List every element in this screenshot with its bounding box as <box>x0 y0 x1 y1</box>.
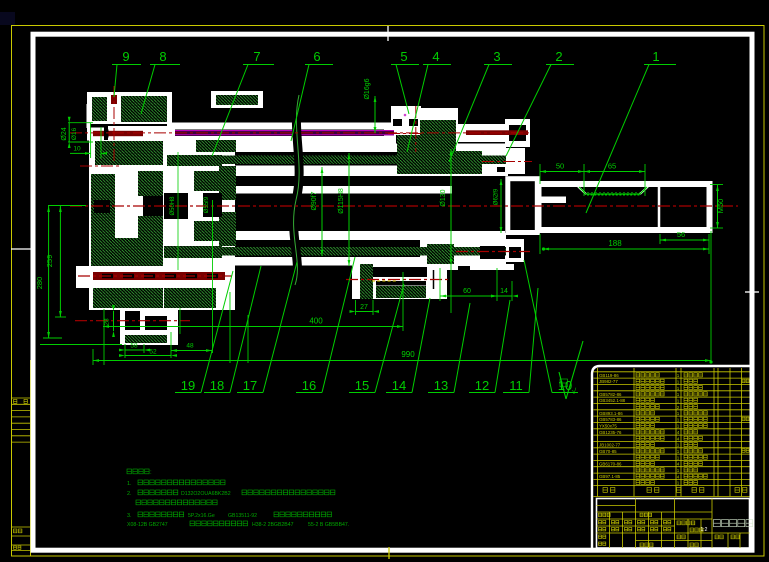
svg-text:GB3452.1-88: GB3452.1-88 <box>599 398 626 403</box>
svg-text:400: 400 <box>309 317 323 326</box>
svg-text:Ø55f9: Ø55f9 <box>204 196 210 213</box>
svg-text:3: 3 <box>493 49 500 64</box>
svg-text:6: 6 <box>313 49 320 64</box>
svg-text:GB1235-76: GB1235-76 <box>599 430 622 435</box>
svg-text:Ø16: Ø16 <box>71 127 78 140</box>
svg-text:YX50x75: YX50x75 <box>599 424 617 429</box>
svg-text:5: 5 <box>400 49 407 64</box>
svg-text:17: 17 <box>243 378 257 393</box>
svg-text:1: 1 <box>677 392 680 397</box>
svg-text:14: 14 <box>500 288 508 295</box>
svg-text:1: 1 <box>677 424 680 429</box>
svg-text:1: 1 <box>677 398 680 403</box>
svg-text:GB893.1-86: GB893.1-86 <box>599 411 623 416</box>
svg-text:1.: 1. <box>127 481 132 487</box>
svg-text:GB13511-92: GB13511-92 <box>228 513 257 519</box>
svg-text:56: 56 <box>677 230 685 239</box>
svg-text:GB6170-86: GB6170-86 <box>599 462 622 467</box>
svg-text:11: 11 <box>509 378 523 393</box>
svg-text:1: 1 <box>677 455 680 460</box>
svg-text:8: 8 <box>159 49 166 64</box>
svg-text:Ø130: Ø130 <box>440 189 447 206</box>
svg-text:4: 4 <box>677 430 680 435</box>
svg-text:28: 28 <box>104 318 111 326</box>
svg-text:Ø115H8: Ø115H8 <box>338 188 345 214</box>
svg-text:12: 12 <box>475 378 489 393</box>
svg-text:188: 188 <box>608 239 622 248</box>
svg-text:27: 27 <box>360 304 368 311</box>
svg-text:D132O2OUA6BK2B2: D132O2OUA6BK2B2 <box>181 491 231 497</box>
svg-text:10: 10 <box>73 146 81 153</box>
svg-text:GB119-86: GB119-86 <box>599 373 619 378</box>
svg-text:1: 1 <box>677 417 680 422</box>
svg-text:4: 4 <box>677 474 680 479</box>
svg-text:4: 4 <box>677 436 680 441</box>
svg-text:X08-12B GB2747: X08-12B GB2747 <box>127 522 168 528</box>
svg-text:15: 15 <box>355 378 369 393</box>
svg-text:√: √ <box>572 387 577 396</box>
svg-text:50: 50 <box>556 162 564 171</box>
svg-text:H38-2 2BGB2B47: H38-2 2BGB2B47 <box>252 522 294 528</box>
svg-text:1: 1 <box>677 411 680 416</box>
svg-text:Ø62f9: Ø62f9 <box>494 188 500 205</box>
svg-text:19: 19 <box>181 378 195 393</box>
svg-text:GB70-85: GB70-85 <box>599 449 617 454</box>
svg-text:13: 13 <box>434 378 448 393</box>
svg-text:M50: M50 <box>716 199 725 214</box>
svg-text:280: 280 <box>35 277 44 290</box>
svg-text:1: 1 <box>652 49 659 64</box>
svg-text:60: 60 <box>463 288 471 295</box>
svg-text:GB5782-86: GB5782-86 <box>599 392 622 397</box>
svg-text:2: 2 <box>555 49 562 64</box>
svg-text:Ø16g6: Ø16g6 <box>364 78 371 99</box>
svg-text:65: 65 <box>608 162 616 171</box>
svg-text:4: 4 <box>677 462 680 467</box>
svg-text:Ø50H8: Ø50H8 <box>170 196 176 216</box>
svg-text:1: 1 <box>677 373 680 378</box>
svg-text:18: 18 <box>210 378 224 393</box>
svg-text:GB5783-86: GB5783-86 <box>599 417 622 422</box>
svg-text:2: 2 <box>677 405 680 410</box>
svg-text:JB982-77: JB982-77 <box>599 379 618 384</box>
svg-text:4: 4 <box>432 49 439 64</box>
svg-text:1: 1 <box>677 468 680 473</box>
svg-text:Ø90f7: Ø90f7 <box>311 191 318 210</box>
svg-text:9: 9 <box>122 49 129 64</box>
svg-text:1: 1 <box>677 386 680 391</box>
svg-text:3.: 3. <box>127 513 132 519</box>
svg-text:1:2: 1:2 <box>701 527 708 533</box>
svg-text:2.: 2. <box>127 491 132 497</box>
svg-text:58: 58 <box>130 343 138 350</box>
svg-text:1: 1 <box>677 443 680 448</box>
svg-text:14: 14 <box>392 378 406 393</box>
svg-text:55-2 B GB5BB47.: 55-2 B GB5BB47. <box>308 522 349 528</box>
svg-text:259: 259 <box>45 255 54 268</box>
svg-text:GB97.1-85: GB97.1-85 <box>599 474 621 479</box>
svg-text:7: 7 <box>253 49 260 64</box>
svg-text:JB1002-77: JB1002-77 <box>599 443 621 448</box>
svg-text:1: 1 <box>677 449 680 454</box>
svg-text:Ø24: Ø24 <box>61 127 68 140</box>
svg-text:52: 52 <box>149 349 157 356</box>
svg-text:1: 1 <box>677 379 680 384</box>
svg-text:16: 16 <box>302 378 316 393</box>
svg-text:1: 1 <box>677 481 680 486</box>
svg-text:990: 990 <box>401 350 415 359</box>
svg-text:5P.2x16.Ge: 5P.2x16.Ge <box>188 513 215 519</box>
svg-text:48: 48 <box>186 343 194 350</box>
